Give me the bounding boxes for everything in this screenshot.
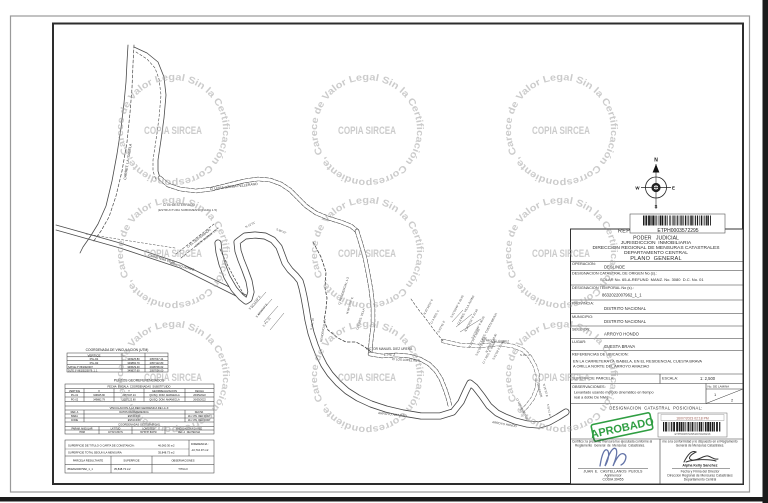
svg-text:VERTICE: VERTICE xyxy=(69,389,80,393)
svg-text:General de Mensuras Catastrale: General de Mensuras Catastrales. xyxy=(676,443,725,447)
svg-text:Departamento Central: Departamento Central xyxy=(684,478,717,482)
svg-text:Reglamento General de Mensu: Reglamento General de Mensuras Catastral… xyxy=(575,443,645,447)
svg-text:TITULO: TITULO xyxy=(178,467,188,471)
svg-text:ARROYO HONDO: ARROYO HONDO xyxy=(604,332,640,337)
svg-text:COPIA SIRCEA: COPIA SIRCEA xyxy=(144,125,202,137)
svg-text:OBSERVACIONES:: OBSERVACIONES: xyxy=(572,385,606,389)
svg-text:349837.60: 349837.60 xyxy=(127,369,140,373)
svg-text:PG-02: PG-02 xyxy=(90,361,99,365)
svg-text:SOLAR No. 65-A-REFUND MANZ. N: SOLAR No. 65-A-REFUND MANZ. No. 3080 D.C… xyxy=(600,277,704,282)
svg-text:2048706.62: 2048706.62 xyxy=(150,365,164,369)
svg-text:PG-01: PG-01 xyxy=(71,394,79,397)
svg-text:8632022007962_1_1: 8632022007962_1_1 xyxy=(602,293,642,298)
svg-text:PARCELA RESULTANTE: PARCELA RESULTANTE xyxy=(73,459,104,463)
svg-text:N: N xyxy=(654,158,658,164)
svg-text:ETPH0003572295160720230218: ETPH0003572295160720230218 xyxy=(675,433,711,436)
svg-text:OBSERVACIONES: OBSERVACIONES xyxy=(171,459,194,463)
svg-text:COPIA SIRCEA: COPIA SIRCEA xyxy=(532,248,590,260)
svg-text:QUISQ. DOM. AMANECLA: QUISQ. DOM. AMANECLA xyxy=(149,394,180,397)
svg-text:COPIA SIRCEA: COPIA SIRCEA xyxy=(338,125,396,137)
svg-text:349882.79: 349882.79 xyxy=(127,361,140,365)
svg-text:35,848.73 m2: 35,848.73 m2 xyxy=(114,467,131,471)
svg-text:FECHA: FECHA xyxy=(195,389,204,393)
svg-text:16/07/2023 02:18 PM: 16/07/2023 02:18 PM xyxy=(676,416,709,420)
svg-text:LATITUD: LATITUD xyxy=(111,428,121,431)
svg-text:PG-02: PG-02 xyxy=(71,398,79,401)
svg-text:COPIA SIRCEA: COPIA SIRCEA xyxy=(144,248,202,260)
svg-text:SUPERFICIE DE TITULO O CARTA D: SUPERFICIE DE TITULO O CARTA DE CONSTANC… xyxy=(68,444,135,448)
svg-text:26/05/2022: 26/05/2022 xyxy=(193,398,206,401)
svg-text:PLANO GENERAL: PLANO GENERAL xyxy=(630,256,682,262)
svg-text:2057047.24: 2057047.24 xyxy=(150,357,164,361)
svg-text:2057122.80: 2057122.80 xyxy=(150,361,164,365)
svg-text:Alpha Kelly Sanchez: Alpha Kelly Sanchez xyxy=(682,464,717,468)
svg-text:1: 2,500: 1: 2,500 xyxy=(700,376,716,381)
svg-text:VINCULACION A LA RED GEODESICA: VINCULACION A LA RED GEODESICA DE LA JI xyxy=(110,406,169,410)
svg-text:46,060.30 m2: 46,060.30 m2 xyxy=(158,444,175,448)
svg-text:DISTRITO NACIONAL: DISTRITO NACIONAL xyxy=(604,306,647,311)
svg-text:FECHA: FECHA xyxy=(195,411,204,414)
svg-text:S: S xyxy=(655,204,658,209)
svg-text:GEORREALIZACION: GEORREALIZACION xyxy=(152,389,177,393)
svg-text:349925.80: 349925.80 xyxy=(93,394,105,397)
svg-text:BARA: BARA xyxy=(71,415,78,418)
svg-text:COPIA SIRCEA: COPIA SIRCEA xyxy=(338,372,396,384)
svg-text:DESIGNACION CATASTRAL POSICI: DESIGNACION CATASTRAL POSICIONAL: xyxy=(609,405,702,410)
svg-text:LUGAR:: LUGAR: xyxy=(572,340,586,344)
svg-text:REF. A: REF. A xyxy=(71,411,79,414)
svg-text:CODE: CODE xyxy=(71,419,79,422)
svg-text:COPIA SIRCEA: COPIA SIRCEA xyxy=(338,248,396,260)
svg-text:69°53'57.846"W: 69°53'57.846"W xyxy=(140,432,157,434)
svg-text:349882.79: 349882.79 xyxy=(93,398,105,401)
svg-text:35,848.73 m2: 35,848.73 m2 xyxy=(158,451,175,455)
svg-text:QUISQ. DOM. AMANECLA: QUISQ. DOM. AMANECLA xyxy=(149,398,180,401)
svg-text:-10,710.97 m2: -10,710.97 m2 xyxy=(191,448,209,452)
svg-text:DLTE 3° 86320220079_1_1: DLTE 3° 86320220079_1_1 xyxy=(68,370,98,373)
svg-text:COPIA SIRCEA: COPIA SIRCEA xyxy=(144,372,202,384)
svg-text:ITRM: ITRM xyxy=(79,431,85,434)
svg-text:X: X xyxy=(98,389,100,393)
svg-text:COORDENADA DE VINCULACION (UTM: COORDENADA DE VINCULACION (UTM) xyxy=(86,348,149,352)
svg-text:ESCALA:: ESCALA: xyxy=(662,377,678,381)
svg-text:CODIA 39455: CODIA 39455 xyxy=(603,478,624,482)
svg-text:349529.40: 349529.40 xyxy=(127,365,140,369)
svg-text:No. DE LAMINA: No. DE LAMINA xyxy=(708,385,730,389)
svg-text:PARAM. ANGULAR: PARAM. ANGULAR xyxy=(71,428,92,431)
svg-text:26/05/2022: 26/05/2022 xyxy=(193,394,206,397)
svg-text:SUPERFICIE: SUPERFICIE xyxy=(123,459,139,463)
svg-text:8632022007962_1_1: 8632022007962_1_1 xyxy=(68,467,94,471)
svg-text:COPIA SIRCEA: COPIA SIRCEA xyxy=(532,372,590,384)
svg-text:DIFERENCIA :: DIFERENCIA : xyxy=(191,442,209,446)
svg-text:OPERACION:: OPERACION: xyxy=(572,262,596,266)
svg-text:SUPERFICIE TOTAL SEGUN LA MENS: SUPERFICIE TOTAL SEGUN LA MENSURA: xyxy=(68,451,123,455)
svg-text:MUNICIPIO:: MUNICIPIO: xyxy=(572,315,593,319)
svg-text:DISTRITO NACIONAL: DISTRITO NACIONAL xyxy=(604,319,647,324)
svg-text:COPIA SIRCEA: COPIA SIRCEA xyxy=(532,125,590,137)
svg-text:E: E xyxy=(672,186,675,191)
svg-text:SATGE 3° 8632022007: SATGE 3° 8632022007 xyxy=(68,366,94,369)
svg-text:S. Po. 2: S. Po. 2 xyxy=(520,353,530,357)
svg-text:ETPH0003572295: ETPH0003572295 xyxy=(657,228,698,234)
svg-text:REFERENCIAS DE UBICACION:: REFERENCIAS DE UBICACION: xyxy=(572,353,629,357)
svg-text:18°31'0.864"N: 18°31'0.864"N xyxy=(108,432,123,434)
